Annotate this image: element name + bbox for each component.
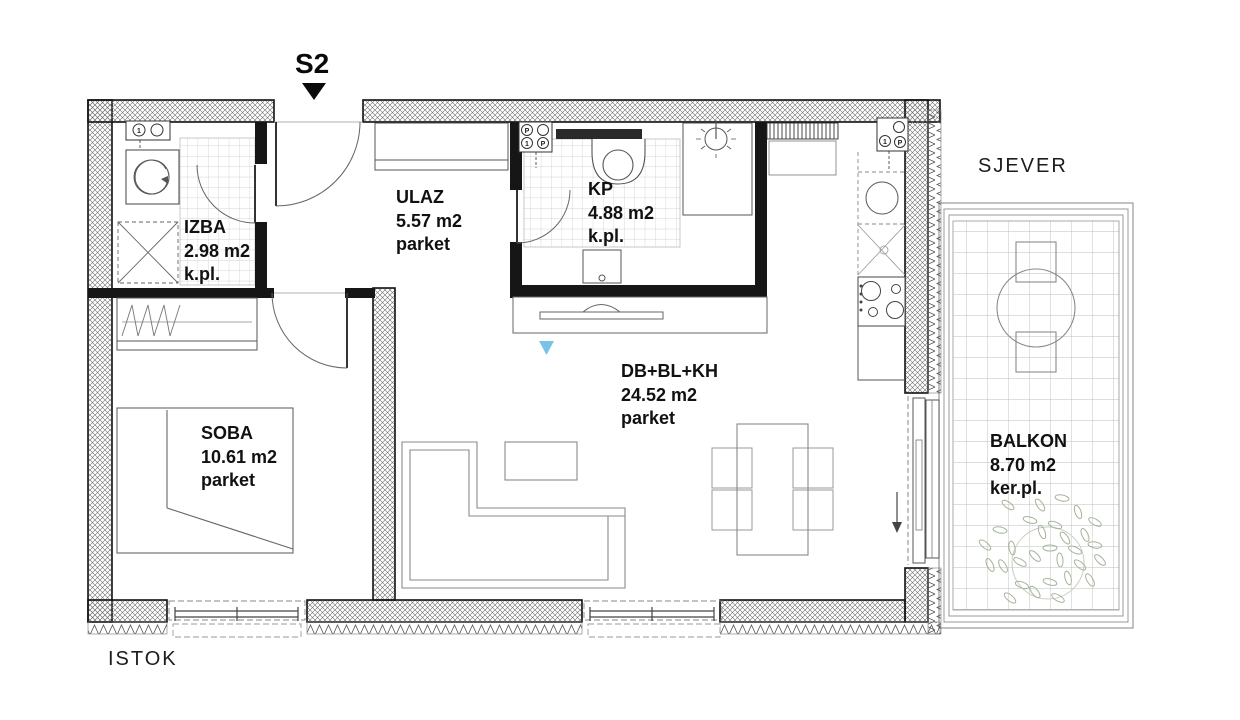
coffee-table xyxy=(505,442,577,480)
kitchen-meter-label-2: P xyxy=(898,140,903,147)
kp-meter-label-1: P xyxy=(525,128,530,135)
vent-shaft xyxy=(767,123,838,175)
room-name: BALKON xyxy=(990,431,1067,451)
kitchen-meter-label-1: 1 xyxy=(883,139,887,146)
izba-fixtures: 1 xyxy=(118,121,179,283)
wall-izba-ulaz-upper xyxy=(255,122,267,164)
dining-set xyxy=(712,424,833,555)
counter-below-stove xyxy=(858,326,905,380)
wall-left xyxy=(88,100,112,622)
wall-bottom-2 xyxy=(307,600,582,622)
soba-window xyxy=(169,601,305,637)
door-slide-arrow-icon xyxy=(892,492,902,533)
compass-east-label: ISTOK xyxy=(108,648,178,671)
izba-meter-label: 1 xyxy=(137,128,141,135)
room-name: ULAZ xyxy=(396,187,444,207)
wall-izba-soba xyxy=(88,288,274,298)
stove-icon xyxy=(858,277,905,326)
room-floor: k.pl. xyxy=(588,226,624,246)
room-area: 5.57 m2 xyxy=(396,211,462,231)
shower-icon xyxy=(683,120,752,215)
living-furniture xyxy=(402,424,833,588)
izba-meter-box xyxy=(126,121,170,152)
room-name: DB+BL+KH xyxy=(621,361,718,381)
dining-chair-1 xyxy=(712,448,752,488)
room-label-ulaz: ULAZ5.57 m2parket xyxy=(396,186,462,257)
room-name: SOBA xyxy=(201,423,253,443)
kitchen-unit-x xyxy=(858,225,905,275)
toilet-cistern xyxy=(556,129,642,139)
appliance-slot-icon xyxy=(118,222,178,283)
room-floor: parket xyxy=(201,470,255,490)
room-name: KP xyxy=(588,179,613,199)
wall-kp-right xyxy=(755,122,767,297)
room-label-izba: IZBA2.98 m2k.pl. xyxy=(184,216,250,287)
compass-north-label: SJEVER xyxy=(978,155,1068,178)
room-area: 10.61 m2 xyxy=(201,447,277,467)
wall-izba-ulaz-lower xyxy=(255,222,267,298)
unit-arrow-icon xyxy=(302,83,326,100)
ulaz-closet xyxy=(375,123,508,170)
insulation-right-lower xyxy=(928,568,941,634)
soba-door xyxy=(272,293,347,368)
room-floor: k.pl. xyxy=(184,264,220,284)
wall-soba-door-stub xyxy=(345,288,375,298)
room-area: 8.70 m2 xyxy=(990,455,1056,475)
wall-top-left xyxy=(88,100,274,122)
kitchen-meter-box xyxy=(877,118,908,170)
wall-bottom-3 xyxy=(720,600,905,622)
dining-chair-4 xyxy=(793,490,833,530)
living-window xyxy=(584,601,722,637)
room-floor: parket xyxy=(621,408,675,428)
insulation-bottom-1 xyxy=(88,622,167,634)
entrance-door xyxy=(274,122,363,206)
soba-wardrobe xyxy=(117,298,257,350)
washbasin-icon xyxy=(583,250,621,283)
wall-bottom-1 xyxy=(88,600,167,622)
room-floor: parket xyxy=(396,234,450,254)
balcony-tiles xyxy=(953,221,1119,610)
washing-machine-icon xyxy=(126,150,179,204)
room-label-kp: KP4.88 m2k.pl. xyxy=(588,178,654,249)
room-area: 2.98 m2 xyxy=(184,241,250,261)
sofa-icon xyxy=(402,442,625,588)
wall-kp-bottom xyxy=(510,285,767,297)
unit-label: S2 xyxy=(295,48,329,80)
insulation-bottom-2 xyxy=(307,622,582,634)
wall-soba-living xyxy=(373,288,395,600)
balcony xyxy=(939,203,1133,628)
floor-plan-drawing: 1 P 1 P xyxy=(0,0,1240,720)
room-area: 24.52 m2 xyxy=(621,385,697,405)
insulation-bottom-3 xyxy=(720,622,940,634)
room-floor: ker.pl. xyxy=(990,478,1042,498)
kitchen: 1 P xyxy=(858,118,908,380)
floor-plan-page: 1 P 1 P xyxy=(0,0,1240,720)
room-label-soba: SOBA10.61 m2parket xyxy=(201,422,277,493)
hall-wardrobe xyxy=(513,297,767,333)
insulation-right-upper xyxy=(928,110,941,393)
balcony-door xyxy=(892,396,939,565)
dining-chair-2 xyxy=(712,490,752,530)
room-label-living: DB+BL+KH24.52 m2parket xyxy=(621,360,718,431)
kp-meter-label-3: P xyxy=(541,141,546,148)
room-area: 4.88 m2 xyxy=(588,203,654,223)
kitchen-sink-icon xyxy=(866,182,898,214)
blue-marker-icon xyxy=(539,341,554,355)
room-name: IZBA xyxy=(184,217,226,237)
room-label-balkon: BALKON8.70 m2ker.pl. xyxy=(990,430,1067,501)
kp-meter-label-2: 1 xyxy=(525,141,529,148)
dining-chair-3 xyxy=(793,448,833,488)
wall-right-lower xyxy=(905,568,928,622)
wall-top-right xyxy=(363,100,940,122)
